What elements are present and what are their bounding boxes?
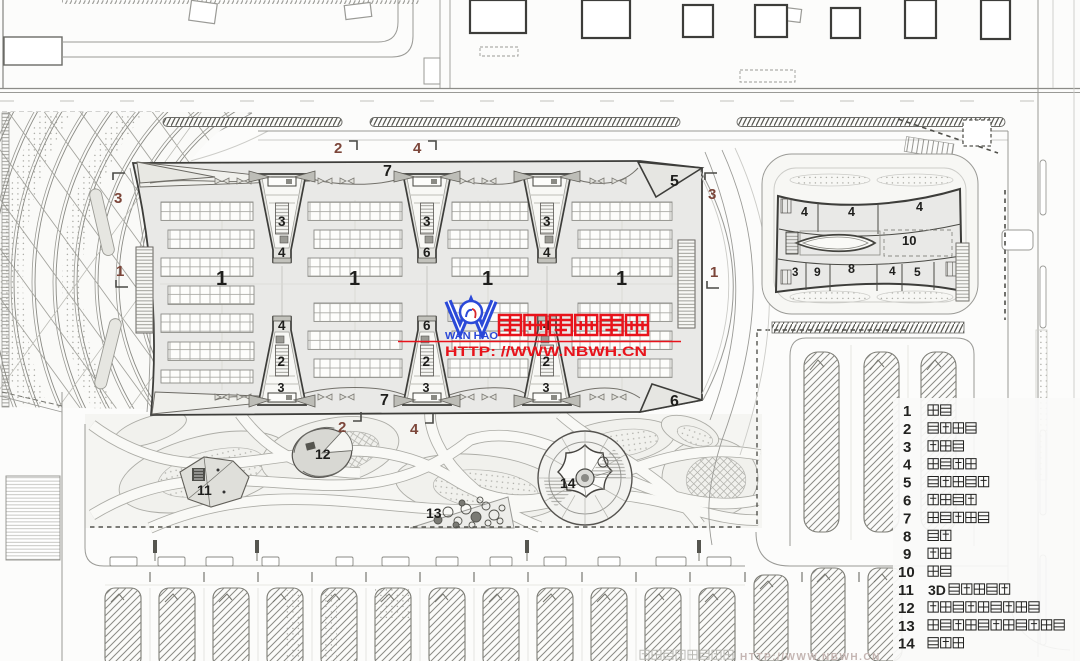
svg-text:WAN HAO: WAN HAO <box>445 331 498 342</box>
svg-text:HTTP: //WWW.NBWH.CN: HTTP: //WWW.NBWH.CN <box>445 343 647 359</box>
svg-text:4: 4 <box>543 245 551 260</box>
svg-text:1: 1 <box>482 268 493 290</box>
svg-text:14: 14 <box>560 475 576 491</box>
svg-text:10: 10 <box>898 564 915 581</box>
svg-text:4: 4 <box>848 205 855 219</box>
svg-text:3: 3 <box>114 190 122 207</box>
svg-text:13: 13 <box>426 505 442 521</box>
svg-text:4: 4 <box>903 457 912 474</box>
svg-text:4: 4 <box>278 245 286 260</box>
svg-text:1: 1 <box>710 264 718 281</box>
svg-text:5: 5 <box>914 265 921 279</box>
svg-text:1: 1 <box>349 268 360 290</box>
svg-text:11: 11 <box>197 482 212 498</box>
svg-text:8: 8 <box>848 262 855 276</box>
svg-text:12: 12 <box>898 600 915 617</box>
svg-text:3: 3 <box>423 214 431 229</box>
svg-text:6: 6 <box>423 318 431 333</box>
svg-text:3: 3 <box>543 214 551 229</box>
svg-text:1: 1 <box>903 403 911 420</box>
svg-text:6: 6 <box>423 245 431 260</box>
svg-text:5: 5 <box>670 173 679 190</box>
svg-text:7: 7 <box>380 392 389 409</box>
svg-text:10: 10 <box>902 233 916 248</box>
svg-text:3: 3 <box>792 267 798 279</box>
svg-text:3: 3 <box>543 381 550 395</box>
svg-text:3D: 3D <box>928 582 946 598</box>
svg-text:12: 12 <box>315 446 331 462</box>
svg-text:4: 4 <box>801 205 808 219</box>
svg-text:14: 14 <box>898 636 915 653</box>
svg-text:5: 5 <box>903 475 911 492</box>
svg-text:4: 4 <box>413 140 422 157</box>
svg-text:3: 3 <box>903 439 911 456</box>
svg-text:6: 6 <box>903 493 911 510</box>
svg-text:2: 2 <box>423 354 431 369</box>
svg-text:6: 6 <box>670 393 679 410</box>
svg-text:4: 4 <box>889 264 896 278</box>
svg-text:4: 4 <box>916 200 923 214</box>
svg-text:3: 3 <box>423 381 430 395</box>
svg-text:1: 1 <box>216 268 227 290</box>
svg-text:13: 13 <box>898 618 915 635</box>
svg-text:2: 2 <box>903 421 911 438</box>
svg-text:9: 9 <box>903 546 911 563</box>
svg-text:2: 2 <box>338 419 346 436</box>
svg-text:2: 2 <box>334 140 342 157</box>
svg-text:3: 3 <box>278 214 286 229</box>
svg-text:1: 1 <box>616 268 627 290</box>
svg-text:9: 9 <box>814 265 821 279</box>
svg-text:HTTP://WWW.NBWH.CN: HTTP://WWW.NBWH.CN <box>740 652 881 661</box>
svg-text:3: 3 <box>708 186 716 203</box>
svg-text:1: 1 <box>116 263 124 280</box>
svg-text:4: 4 <box>278 318 286 333</box>
svg-text:7: 7 <box>903 510 911 527</box>
svg-text:3: 3 <box>278 381 285 395</box>
svg-text:8: 8 <box>903 528 911 545</box>
svg-text:2: 2 <box>278 354 286 369</box>
svg-text:4: 4 <box>410 421 419 438</box>
svg-text:11: 11 <box>898 582 914 599</box>
svg-text:7: 7 <box>383 163 392 180</box>
